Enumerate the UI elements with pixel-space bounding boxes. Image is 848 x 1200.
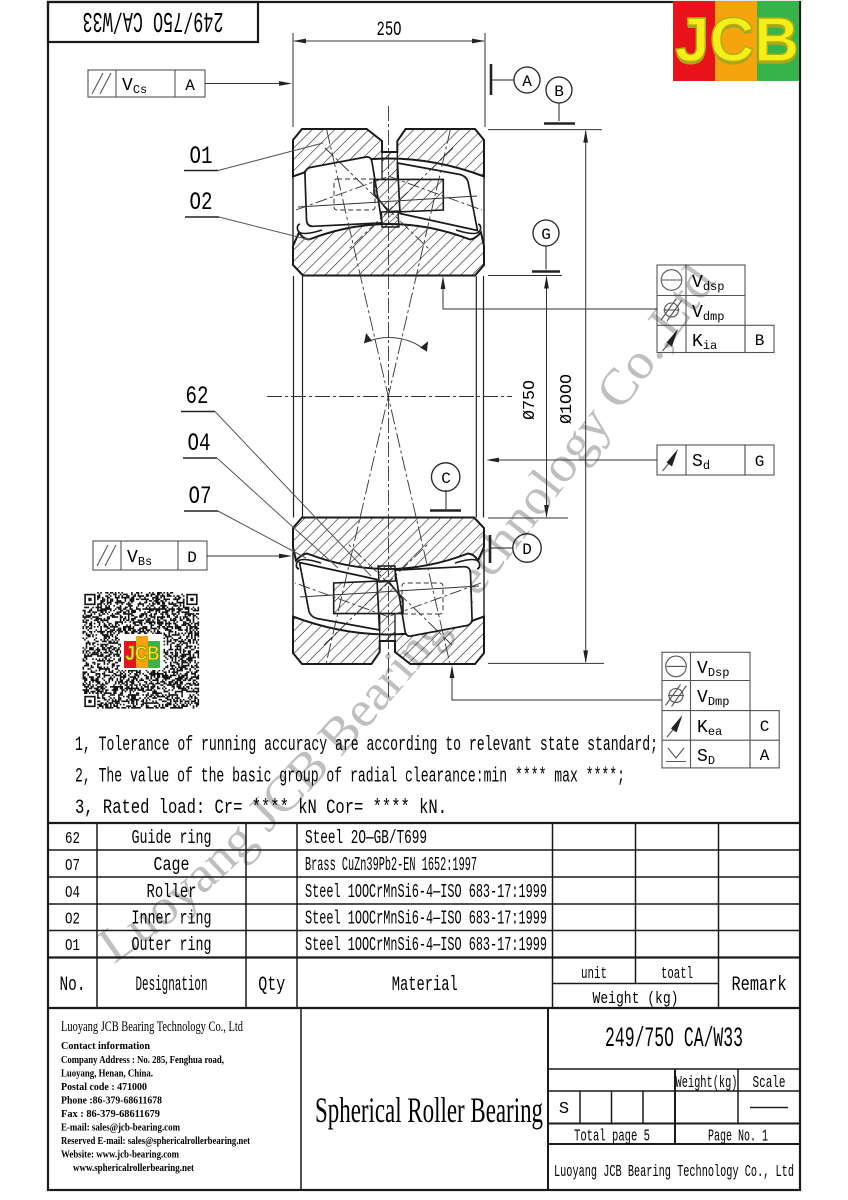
svg-text:Qty: Qty: [258, 974, 285, 997]
svg-text:Cage: Cage: [154, 854, 190, 876]
svg-text:Remark: Remark: [732, 974, 787, 997]
svg-text:Ø75O: Ø75O: [521, 380, 540, 420]
svg-text:Outer ring: Outer ring: [132, 934, 212, 956]
svg-text:249/75O CA/W33: 249/75O CA/W33: [605, 1024, 743, 1055]
svg-text:G: G: [755, 453, 765, 471]
svg-text:O4: O4: [65, 884, 80, 903]
svg-text:O7: O7: [65, 857, 80, 876]
svg-text:JCB: JCB: [126, 643, 160, 665]
svg-text:Steel 2O—GB/T699: Steel 2O—GB/T699: [305, 827, 427, 849]
svg-text:G: G: [541, 226, 551, 244]
svg-text:25O: 25O: [377, 19, 402, 42]
svg-text:unit: unit: [581, 965, 607, 984]
svg-text:Luoyang JCB Bearing Technology: Luoyang JCB Bearing Technology Co., Ltd: [554, 1162, 794, 1181]
svg-text:Website: www.jcb-bearing.com: Website: www.jcb-bearing.com: [61, 1150, 179, 1161]
svg-text:Ø1OOO: Ø1OOO: [558, 374, 577, 424]
svg-text:JCB: JCB: [675, 6, 799, 75]
svg-text:S: S: [559, 1100, 569, 1119]
svg-text:3, Rated load: Cr= **** kN Cor: 3, Rated load: Cr= **** kN Cor= **** kN.: [75, 797, 447, 820]
svg-text:C: C: [441, 470, 451, 488]
svg-text:A: A: [760, 747, 770, 765]
svg-text:Luoyang JCB Bearing Technology: Luoyang JCB Bearing Technology Co., Ltd: [61, 1019, 244, 1035]
svg-text:A: A: [185, 77, 195, 95]
svg-text:D: D: [187, 549, 197, 567]
svg-text:Guide ring: Guide ring: [132, 827, 212, 849]
svg-text:Designation: Designation: [136, 974, 208, 997]
svg-text:62: 62: [65, 830, 80, 849]
svg-text:Steel 1OOCrMnSi6-4—ISO 683-17:: Steel 1OOCrMnSi6-4—ISO 683-17:1999: [305, 908, 547, 930]
svg-text:Total page 5: Total page 5: [574, 1128, 650, 1147]
svg-text:Spherical Roller Bearing: Spherical Roller Bearing: [315, 1090, 543, 1130]
svg-text:Roller: Roller: [147, 881, 197, 903]
svg-text:No.: No.: [60, 974, 86, 997]
svg-text:Phone :86-379-68611678: Phone :86-379-68611678: [61, 1096, 162, 1107]
svg-text:Weight (kg): Weight (kg): [593, 990, 679, 1009]
svg-text:Reserved E-mail: sales@spheric: Reserved E-mail: sales@sphericalrollerbe…: [61, 1136, 250, 1147]
svg-text:B: B: [554, 83, 564, 101]
svg-text:A: A: [522, 73, 532, 91]
svg-text:www.sphericalrollerbearing.net: www.sphericalrollerbearing.net: [73, 1163, 194, 1174]
svg-text:Inner ring: Inner ring: [132, 908, 212, 930]
svg-text:O2: O2: [190, 188, 213, 217]
svg-text:Contact information: Contact information: [61, 1041, 150, 1052]
svg-text:O7: O7: [189, 482, 212, 511]
svg-text:Material: Material: [392, 974, 458, 997]
svg-text:Luoyang, Henan, China.: Luoyang, Henan, China.: [61, 1069, 153, 1080]
svg-text:B: B: [755, 332, 765, 350]
svg-text:Brass CuZn39Pb2-EN 1652:1997: Brass CuZn39Pb2-EN 1652:1997: [305, 854, 477, 876]
svg-text:D: D: [522, 541, 532, 559]
svg-text:toatl: toatl: [661, 965, 693, 984]
svg-text:O4: O4: [188, 429, 211, 458]
svg-text:O1: O1: [65, 937, 80, 956]
svg-text:Steel 1OOCrMnSi6-4—ISO 683-17:: Steel 1OOCrMnSi6-4—ISO 683-17:1999: [305, 934, 547, 956]
svg-text:62: 62: [186, 382, 209, 411]
svg-text:E-mail: sales@jcb-bearing.com: E-mail: sales@jcb-bearing.com: [61, 1123, 180, 1134]
svg-text:1, Tolerance of running accura: 1, Tolerance of running accuracy are acc…: [75, 734, 658, 757]
svg-text:O2: O2: [65, 911, 80, 930]
svg-text:Page No. 1: Page No. 1: [708, 1128, 768, 1147]
svg-text:O1: O1: [190, 142, 213, 171]
svg-text:2, The value of the basic grou: 2, The value of the basic group of radia…: [75, 766, 625, 789]
svg-text:Steel 1OOCrMnSi6-4—ISO 683-17:: Steel 1OOCrMnSi6-4—ISO 683-17:1999: [305, 881, 547, 903]
svg-text:Fax : 86-379-68611679: Fax : 86-379-68611679: [61, 1109, 160, 1120]
svg-text:Weight(kg): Weight(kg): [676, 1074, 738, 1093]
svg-text:Postal code : 471000: Postal code : 471000: [61, 1082, 147, 1093]
svg-text:Company Address : No. 285, Fen: Company Address : No. 285, Fenghua road,: [61, 1055, 224, 1066]
svg-text:249/75O CA/W33: 249/75O CA/W33: [83, 4, 224, 37]
svg-text:Scale: Scale: [753, 1074, 786, 1093]
svg-text:C: C: [760, 718, 770, 736]
